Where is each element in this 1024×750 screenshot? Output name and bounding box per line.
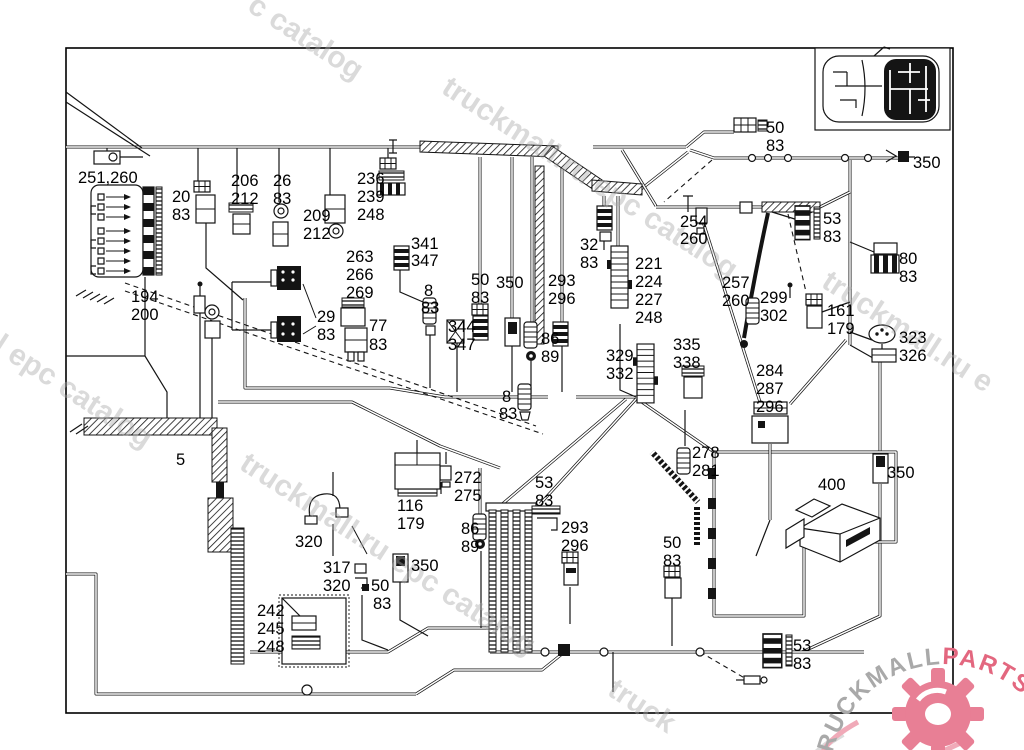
part-label: 8 [424,282,433,300]
part-label: 89 [461,538,479,556]
part-label: 209 [303,207,331,225]
part-label: 224 [635,273,663,291]
part-label: 260 [722,292,750,310]
part-label: 212 [231,190,259,208]
wiring-diagram-page: c catalog truckmall.ru epc catalog l epc… [0,0,1024,750]
part-label: 320 [295,533,323,551]
part-label: 320 [323,577,351,595]
car-inset [815,47,950,130]
connector-272-275 [440,466,451,480]
part-label: 83 [317,326,335,344]
part-label: 260 [680,230,708,248]
part-label: 200 [131,306,159,324]
part-label: 50 [371,577,389,595]
part-label: 266 [346,266,374,284]
part-label: 248 [257,638,285,656]
connector-86-89-top [524,322,537,348]
part-label: 239 [357,188,385,206]
part-label: 161 [827,302,855,320]
part-label: 83 [766,137,784,155]
connector-53-83-bottomright [763,634,782,668]
part-label: 179 [827,320,855,338]
part-label: 347 [411,252,439,270]
part-label: 248 [635,309,663,327]
part-label: 26 [273,172,291,190]
part-label: 278 [692,444,720,462]
part-label: 281 [692,462,720,480]
part-label: 269 [346,284,374,302]
part-label: 83 [580,254,598,272]
part-label: 83 [421,299,439,317]
part-label: 242 [257,602,285,620]
part-label: 53 [823,210,841,228]
part-label: 20 [172,188,190,206]
part-label: 212 [303,225,331,243]
part-label: 329 [606,347,634,365]
part-label: 323 [899,329,927,347]
watermark-text: c catalog [242,0,369,87]
part-label: 5 [176,451,185,469]
part-label: 53 [535,474,553,492]
part-label: 179 [397,515,425,533]
part-label: 296 [756,398,784,416]
connector-29-83 [271,266,301,342]
part-label: 86 [541,330,559,348]
junction-box-242-248 [279,595,349,667]
part-label: 350 [496,274,524,292]
part-label: 248 [357,206,385,224]
part-label: 83 [273,190,291,208]
part-label: 83 [793,655,811,673]
connector-236-248 [380,158,396,169]
part-label: 350 [913,154,941,172]
watermark-text: truck [602,672,682,740]
part-label: 83 [535,492,553,510]
part-label: 50 [471,271,489,289]
part-label: 341 [411,235,439,253]
part-label: 29 [317,308,335,326]
part-label: 83 [471,289,489,307]
connector-53-83-right [795,206,810,240]
part-label: 299 [760,289,788,307]
wiring-diagram-canvas: c catalog truckmall.ru epc catalog l epc… [0,0,1024,750]
part-label: 272 [454,469,482,487]
part-label: 80 [899,250,917,268]
part-label: 293 [548,272,576,290]
brand-logo: TRUCKMALLPARTS [805,643,1024,750]
part-label: 296 [548,290,576,308]
part-label: 332 [606,365,634,383]
part-label: 83 [373,595,391,613]
part-label: 287 [756,380,784,398]
connector-50-83-bottomleft [355,564,366,573]
part-label: 344 [448,318,476,336]
part-label: 326 [899,347,927,365]
part-label: 50 [766,119,784,137]
part-label: 83 [663,552,681,570]
part-label: 338 [673,354,701,372]
part-label: 296 [561,537,589,555]
connector-20-83 [194,181,210,192]
part-label: 50 [663,534,681,552]
part-label: 335 [673,336,701,354]
connector-341-347 [394,246,409,270]
watermark-text: l epc catalog [0,328,159,455]
part-label: 350 [887,464,915,482]
part-label: 275 [454,487,482,505]
part-label: 236 [357,170,385,188]
part-label: 254 [680,213,708,231]
connector-329-332 [633,344,658,403]
part-label: 77 [369,317,387,335]
part-label: 32 [580,236,598,254]
part-label: 227 [635,291,663,309]
part-label: 347 [448,336,476,354]
part-label: 86 [461,520,479,538]
part-label: 251,260 [78,169,138,187]
connector-8-83-center [518,384,531,410]
part-label: 263 [346,248,374,266]
part-label: 83 [172,206,190,224]
part-label: 206 [231,172,259,190]
connector-161-179 [806,294,822,305]
part-label: 53 [793,637,811,655]
part-label: 194 [131,288,159,306]
connector-80-83 [874,243,897,254]
part-label: 350 [411,557,439,575]
connector-278-281 [677,448,690,474]
part-label: 83 [823,228,841,246]
part-label: 89 [541,348,559,366]
part-label: 116 [397,497,423,515]
part-label: 257 [722,274,750,292]
part-label: 400 [818,476,846,494]
part-label: 317 [323,559,351,577]
connector-221-248 [607,246,632,308]
part-label: 293 [561,519,589,537]
part-label: 83 [499,405,517,423]
part-label: 221 [635,255,663,273]
part-label: 245 [257,620,285,638]
part-label: 83 [899,268,917,286]
part-label: 8 [502,388,511,406]
connector-400 [786,499,880,562]
part-label: 302 [760,307,788,325]
part-label: 284 [756,362,784,380]
part-label: 83 [369,336,387,354]
